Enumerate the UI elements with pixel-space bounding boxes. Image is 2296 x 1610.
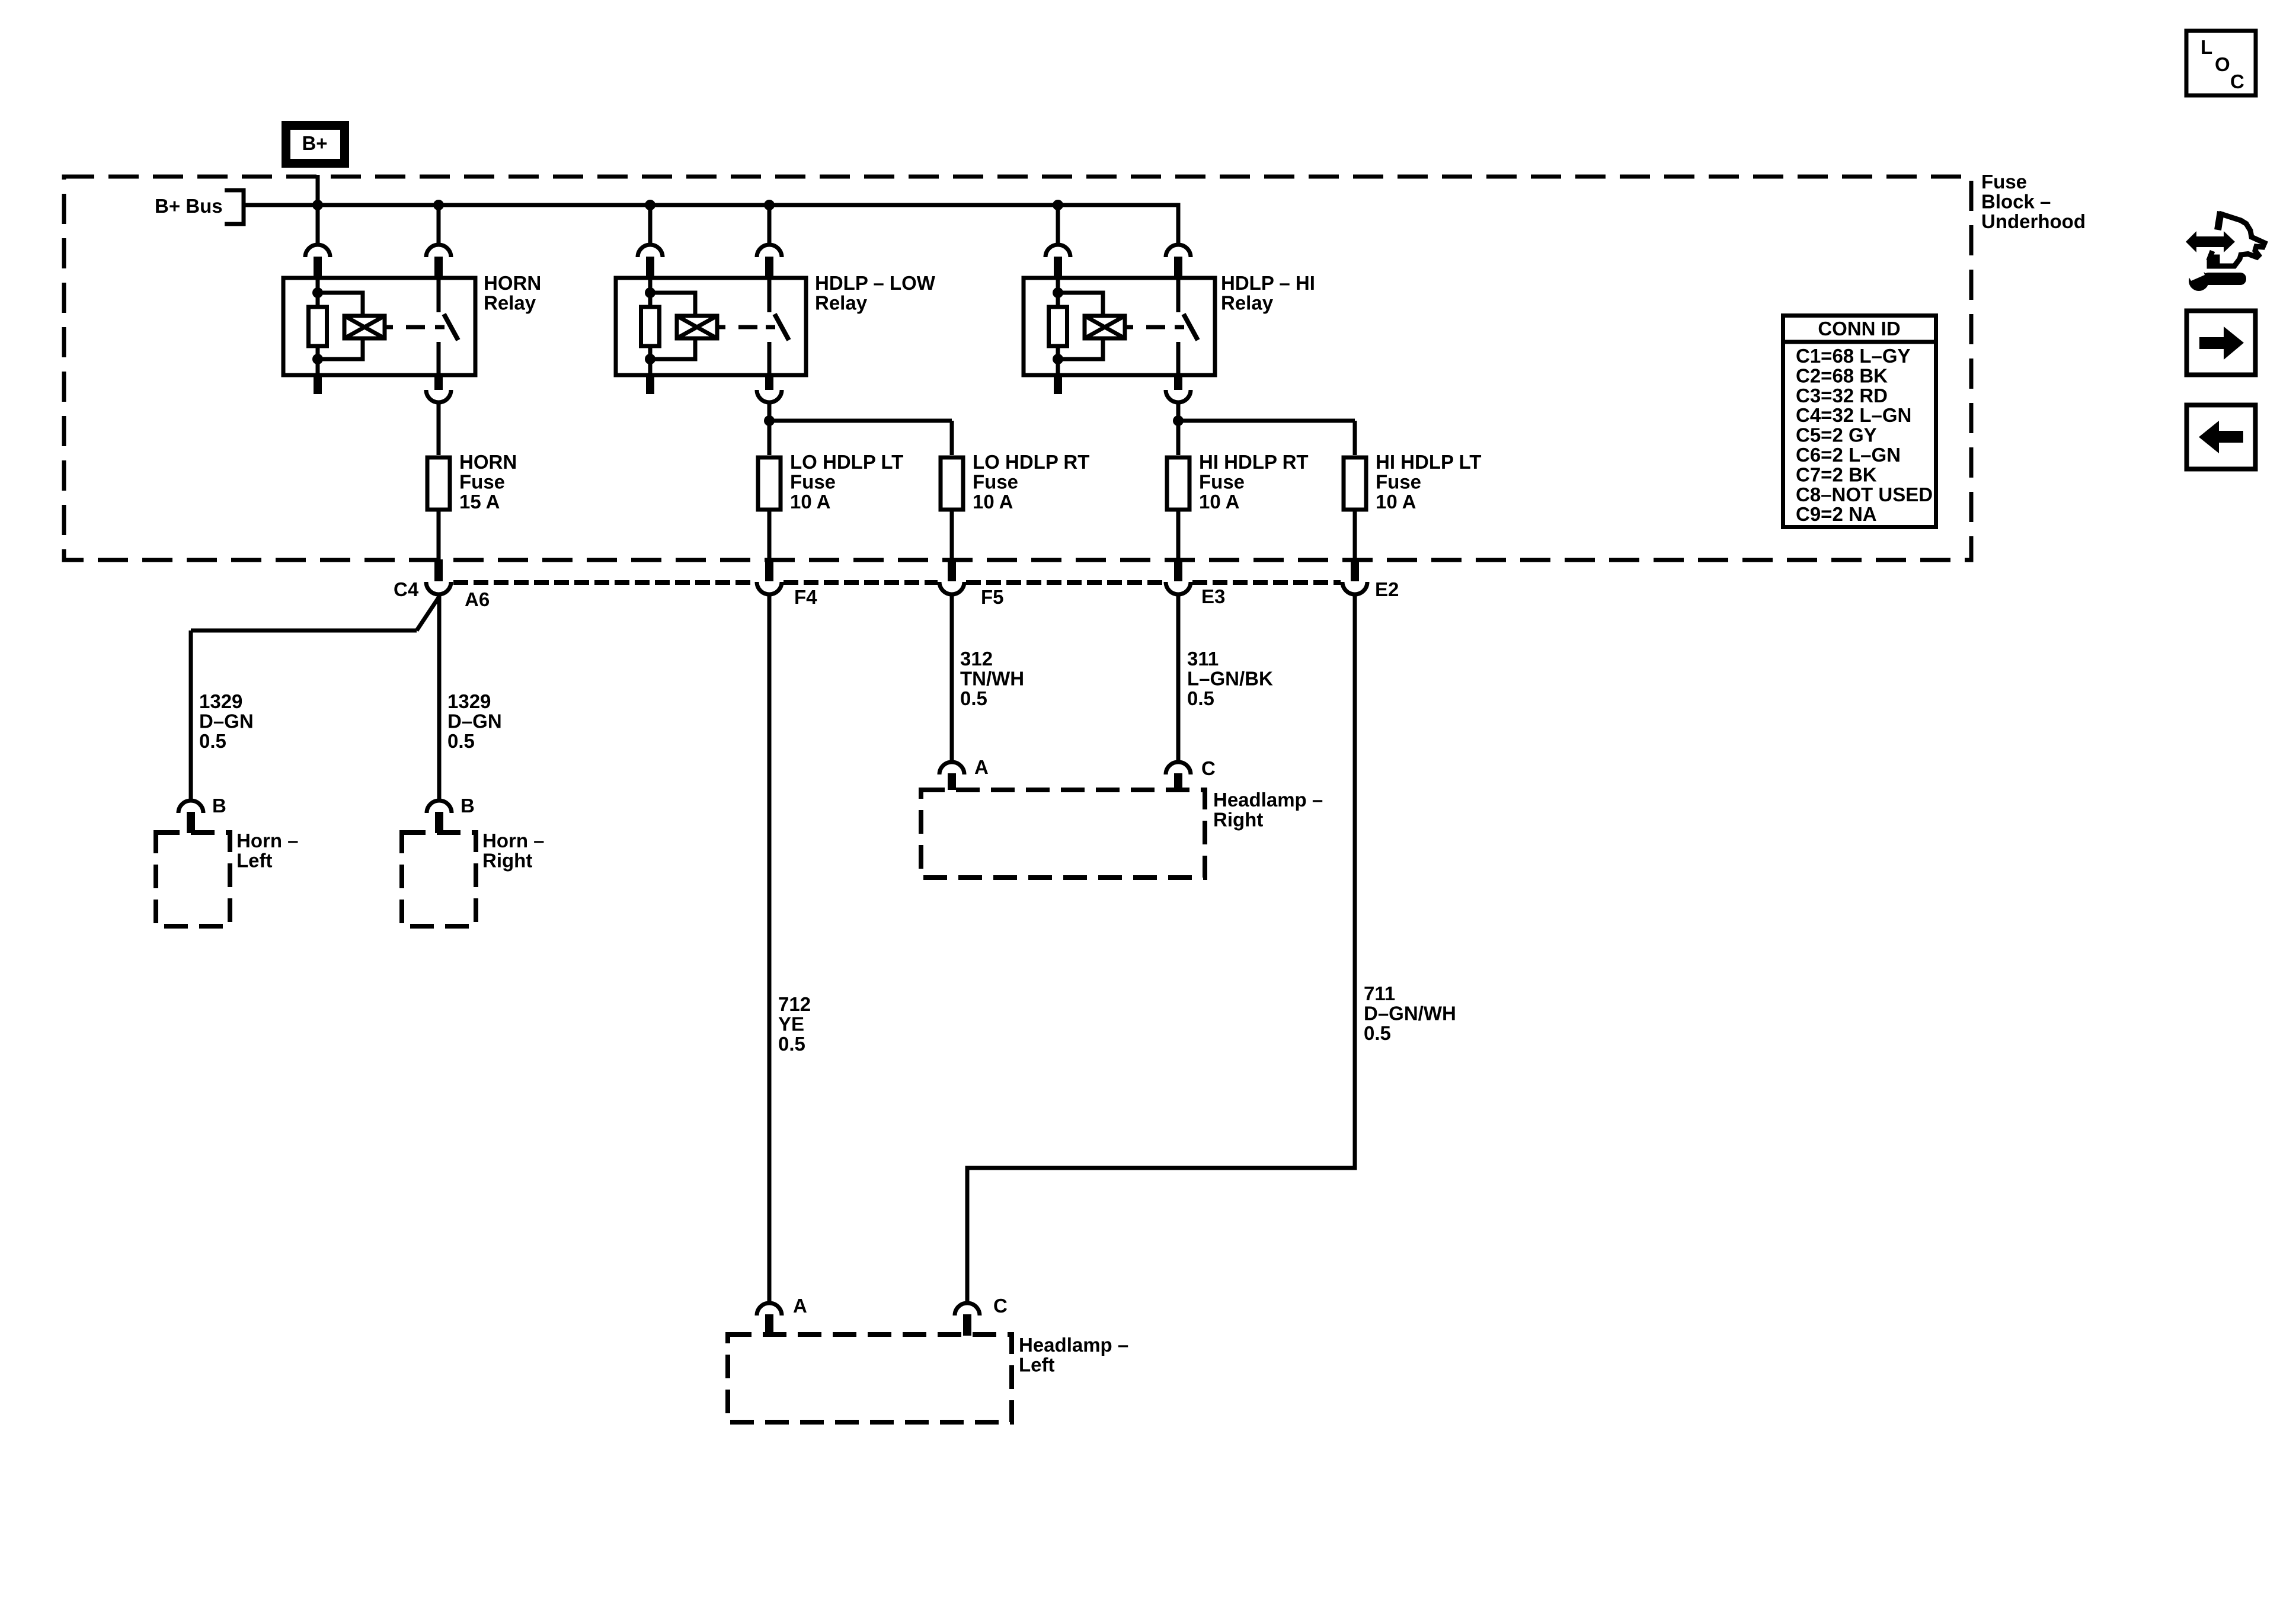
- svg-text:C6=2 L–GN: C6=2 L–GN: [1796, 444, 1901, 466]
- svg-text:0.5: 0.5: [960, 687, 987, 709]
- svg-text:Fuse: Fuse: [459, 471, 505, 493]
- svg-text:D–GN: D–GN: [447, 710, 502, 732]
- svg-text:E2: E2: [1375, 578, 1399, 600]
- svg-text:Left: Left: [236, 850, 273, 872]
- svg-text:C2=68 BK: C2=68 BK: [1796, 364, 1888, 386]
- svg-text:HDLP – LOW: HDLP – LOW: [815, 272, 936, 294]
- svg-text:1329: 1329: [447, 690, 491, 712]
- svg-text:711: 711: [1364, 982, 1395, 1004]
- svg-text:0.5: 0.5: [447, 730, 475, 752]
- svg-text:A: A: [793, 1295, 807, 1317]
- svg-text:Fuse: Fuse: [1376, 471, 1421, 493]
- svg-text:LO HDLP RT: LO HDLP RT: [973, 451, 1089, 473]
- svg-text:15 A: 15 A: [459, 491, 500, 513]
- svg-text:F5: F5: [981, 586, 1004, 608]
- svg-text:Relay: Relay: [1221, 292, 1274, 314]
- svg-text:F4: F4: [794, 586, 817, 608]
- svg-text:HORN: HORN: [459, 451, 517, 473]
- svg-text:Headlamp –: Headlamp –: [1019, 1334, 1128, 1356]
- svg-text:HI HDLP LT: HI HDLP LT: [1376, 451, 1481, 473]
- svg-text:Relay: Relay: [484, 292, 536, 314]
- svg-text:L–GN/BK: L–GN/BK: [1187, 668, 1273, 690]
- svg-text:0.5: 0.5: [1364, 1022, 1391, 1044]
- svg-text:Right: Right: [1213, 809, 1263, 831]
- svg-text:L: L: [2201, 36, 2212, 58]
- svg-text:C4=32 L–GN: C4=32 L–GN: [1796, 404, 1911, 426]
- svg-text:712: 712: [778, 993, 811, 1015]
- svg-text:Headlamp –: Headlamp –: [1213, 789, 1323, 811]
- svg-text:Fuse: Fuse: [973, 471, 1018, 493]
- svg-text:C4: C4: [394, 578, 419, 600]
- svg-text:B: B: [461, 795, 475, 817]
- svg-text:Fuse: Fuse: [1981, 171, 2027, 193]
- svg-text:Underhood: Underhood: [1981, 210, 2086, 232]
- svg-text:HORN: HORN: [484, 272, 541, 294]
- svg-text:Horn –: Horn –: [482, 830, 545, 852]
- svg-text:Fuse: Fuse: [1199, 471, 1245, 493]
- svg-text:Horn –: Horn –: [236, 830, 299, 852]
- svg-text:0.5: 0.5: [199, 730, 226, 752]
- svg-text:D–GN: D–GN: [199, 710, 254, 732]
- svg-text:B+ Bus: B+ Bus: [155, 195, 223, 217]
- svg-text:C: C: [2230, 71, 2244, 92]
- svg-text:A6: A6: [465, 588, 490, 610]
- svg-text:Right: Right: [482, 850, 532, 872]
- svg-text:10 A: 10 A: [973, 491, 1013, 513]
- svg-text:C7=2 BK: C7=2 BK: [1796, 463, 1877, 485]
- svg-text:HDLP – HI: HDLP – HI: [1221, 272, 1315, 294]
- svg-text:1329: 1329: [199, 690, 242, 712]
- svg-text:Relay: Relay: [815, 292, 868, 314]
- svg-text:YE: YE: [778, 1013, 804, 1035]
- svg-text:HI HDLP RT: HI HDLP RT: [1199, 451, 1309, 473]
- svg-text:Block –: Block –: [1981, 191, 2051, 213]
- svg-text:C5=2 GY: C5=2 GY: [1796, 424, 1877, 446]
- svg-text:B+: B+: [302, 132, 327, 154]
- svg-text:A: A: [974, 756, 989, 778]
- svg-text:B: B: [212, 795, 226, 817]
- svg-text:312: 312: [960, 648, 993, 670]
- svg-text:E3: E3: [1201, 585, 1225, 607]
- svg-text:C8–NOT USED: C8–NOT USED: [1796, 484, 1933, 505]
- svg-text:Fuse: Fuse: [790, 471, 836, 493]
- svg-text:0.5: 0.5: [1187, 687, 1214, 709]
- svg-text:C: C: [993, 1295, 1008, 1317]
- svg-text:10 A: 10 A: [1376, 491, 1416, 513]
- svg-text:O: O: [2215, 53, 2230, 75]
- svg-text:Left: Left: [1019, 1354, 1055, 1376]
- svg-text:10 A: 10 A: [790, 491, 830, 513]
- svg-text:C9=2 NA: C9=2 NA: [1796, 503, 1877, 525]
- svg-text:CONN ID: CONN ID: [1818, 318, 1900, 340]
- svg-text:C3=32 RD: C3=32 RD: [1796, 385, 1888, 406]
- svg-text:LO HDLP LT: LO HDLP LT: [790, 451, 903, 473]
- svg-text:D–GN/WH: D–GN/WH: [1364, 1003, 1456, 1025]
- svg-text:C1=68 L–GY: C1=68 L–GY: [1796, 345, 1911, 367]
- svg-text:10 A: 10 A: [1199, 491, 1239, 513]
- svg-text:311: 311: [1187, 648, 1219, 670]
- svg-text:0.5: 0.5: [778, 1033, 805, 1055]
- svg-text:C: C: [1201, 757, 1216, 779]
- svg-text:TN/WH: TN/WH: [960, 668, 1024, 690]
